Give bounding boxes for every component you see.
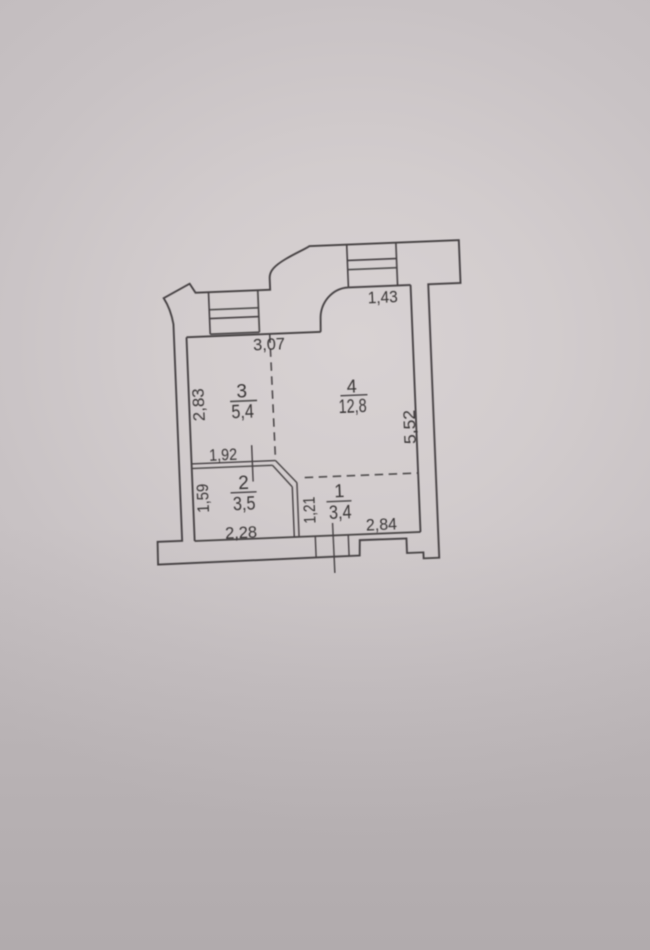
svg-text:4: 4	[346, 377, 357, 397]
svg-text:3,5: 3,5	[233, 494, 256, 516]
svg-text:2,84: 2,84	[366, 514, 398, 534]
svg-text:1,92: 1,92	[209, 446, 238, 465]
svg-text:1,59: 1,59	[193, 483, 213, 513]
svg-text:2,83: 2,83	[188, 388, 208, 422]
svg-text:5,52: 5,52	[400, 410, 420, 445]
svg-text:3,4: 3,4	[329, 502, 353, 524]
svg-text:2,28: 2,28	[225, 522, 258, 542]
svg-text:1,21: 1,21	[299, 496, 319, 524]
svg-text:5,4: 5,4	[231, 402, 255, 424]
svg-text:3: 3	[236, 381, 247, 402]
svg-text:12,8: 12,8	[338, 395, 367, 418]
svg-text:2: 2	[238, 473, 249, 494]
svg-text:1,43: 1,43	[367, 287, 398, 307]
svg-text:3,07: 3,07	[253, 334, 286, 354]
svg-text:1: 1	[334, 481, 345, 501]
